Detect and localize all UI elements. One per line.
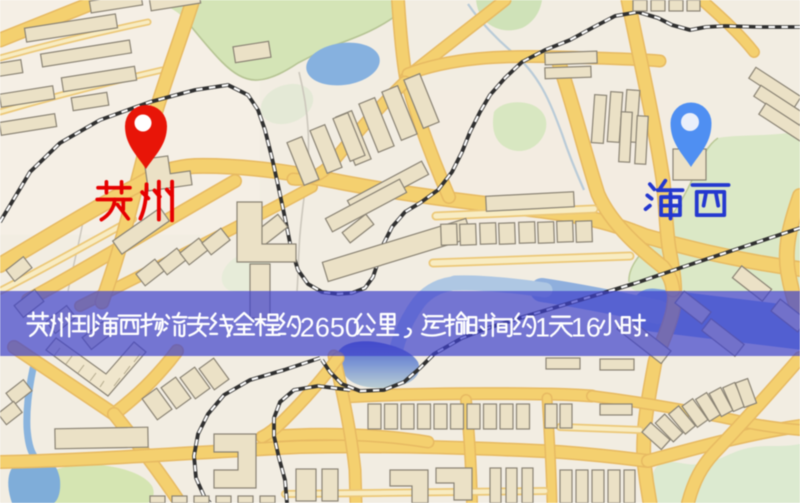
svg-text:16: 16 (571, 313, 601, 343)
svg-text:2650: 2650 (300, 313, 360, 343)
svg-text:.: . (643, 313, 651, 343)
svg-text:1: 1 (535, 313, 550, 343)
